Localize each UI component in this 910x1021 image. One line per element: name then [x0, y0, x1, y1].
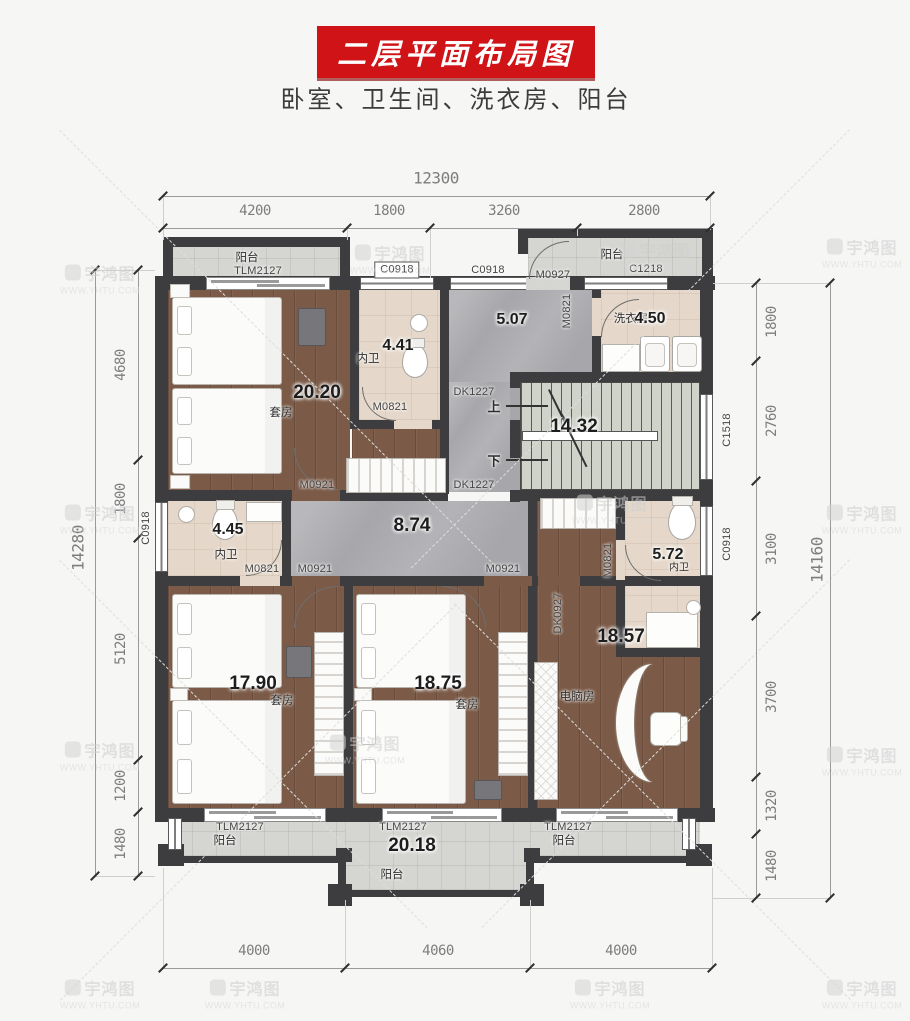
- door-code-m0821-bath-left: M0821: [245, 563, 280, 575]
- shower-tray: [646, 612, 698, 648]
- dim-left-2: 1800: [113, 483, 129, 515]
- extension-line: [95, 876, 155, 877]
- extension-line: [530, 900, 531, 968]
- opening-code-dk1227-lower: DK1227: [454, 479, 495, 491]
- wall: [510, 372, 600, 382]
- wall: [163, 237, 350, 247]
- extension-line: [163, 196, 164, 240]
- watermark-url: WWW.YHTU.COM: [822, 260, 902, 270]
- watermark-url: WWW.YHTU.COM: [822, 526, 902, 536]
- pillar: [328, 884, 352, 906]
- computer-area: 18.57: [597, 626, 645, 648]
- opening-code-dk0927: DK0927: [552, 593, 564, 634]
- door-code-m0821-bath-right: M0821: [602, 543, 614, 578]
- bath-top-label: 内卫: [357, 350, 380, 366]
- sink: [178, 506, 195, 523]
- window-code-c0918-right: C0918: [721, 527, 733, 560]
- watermark-url: WWW.YHTU.COM: [570, 1001, 650, 1011]
- balcony-door-tlm2127-bottom-center: [382, 808, 502, 822]
- hall-top-area: 5.07: [496, 311, 527, 329]
- yhtu-logo-icon: [209, 980, 225, 996]
- balcony-top-left-label: 阳台: [236, 249, 259, 265]
- bath-left-area: 4.45: [212, 521, 243, 539]
- watermark: 宇鸿图WWW.YHTU.COM: [822, 501, 902, 536]
- watermark: 宇鸿图WWW.YHTU.COM: [822, 743, 902, 778]
- dim-line-top-total: [163, 196, 710, 197]
- pillar: [520, 884, 544, 906]
- watermark: 宇鸿图WWW.YHTU.COM: [570, 976, 650, 1011]
- sink-counter: [246, 502, 282, 522]
- dim-line-left-total: [95, 270, 96, 876]
- watermark: 宇鸿图WWW.YHTU.COM: [822, 976, 902, 1011]
- dim-right-6: 1480: [764, 850, 780, 882]
- watermark-brand: 宇鸿图: [846, 976, 897, 1000]
- window-c0918-right: [700, 506, 713, 576]
- dim-bottom-1: 4000: [238, 943, 270, 959]
- door-opening-m0921-suite-top: [292, 490, 340, 501]
- door-opening-m0821-laundry: [592, 298, 601, 336]
- wardrobe: [498, 632, 528, 776]
- nightstand: [170, 475, 190, 489]
- dim-line-right-total: [830, 283, 831, 898]
- yhtu-logo-icon: [64, 505, 80, 521]
- door-opening-m0821-bath-left: [240, 576, 280, 586]
- yhtu-logo-icon: [826, 239, 842, 255]
- window-code-c0918-1: C0918: [374, 262, 419, 279]
- extension-line: [713, 898, 830, 899]
- watermark-brand: 宇鸿图: [846, 501, 897, 525]
- door-opening-m0821-bath-top: [394, 420, 432, 429]
- yhtu-logo-icon: [64, 742, 80, 758]
- dim-bottom-2: 4060: [422, 943, 454, 959]
- bed: [172, 297, 282, 385]
- opening-dk0927: [538, 576, 580, 586]
- watermark: 宇鸿图WWW.YHTU.COM: [60, 976, 140, 1011]
- watermark-url: WWW.YHTU.COM: [822, 1001, 902, 1011]
- window-c0918-top-1: [360, 277, 434, 290]
- window-c0918-top-2: [450, 277, 532, 290]
- wall: [282, 496, 291, 586]
- dim-left-4: 1200: [113, 770, 129, 802]
- suite-top-label: 套房: [270, 404, 293, 420]
- dim-left-total: 14280: [69, 525, 88, 571]
- bed: [356, 700, 466, 804]
- tv: [474, 780, 502, 800]
- dim-bottom-3: 4000: [605, 943, 637, 959]
- window-c1218: [584, 277, 668, 290]
- balcony-door-tlm2127-top: [206, 277, 330, 290]
- nightstand: [170, 284, 190, 298]
- dim-top-total: 12300: [413, 169, 459, 188]
- dim-left-3: 5120: [113, 633, 129, 665]
- balcony-bl-label: 阳台: [214, 832, 237, 848]
- dim-right-1: 1800: [764, 306, 780, 338]
- balcony-bc-label: 阳台: [381, 866, 404, 882]
- watermark-brand: 宇鸿图: [84, 738, 135, 762]
- washing-machine: [672, 336, 702, 372]
- wardrobe: [346, 458, 446, 493]
- tv: [286, 646, 312, 678]
- computer-label: 电脑房: [560, 688, 595, 704]
- watermark-brand: 宇鸿图: [594, 976, 645, 1000]
- dim-line-right-segments: [756, 283, 757, 898]
- balcony-br-label: 阳台: [553, 832, 576, 848]
- bath-right-label: 内卫: [669, 559, 689, 574]
- extension-line: [347, 228, 348, 240]
- watermark: 宇鸿图WWW.YHTU.COM: [822, 235, 902, 270]
- wardrobe: [314, 632, 344, 776]
- suite-bm-area: 18.75: [414, 673, 462, 695]
- door-code-m0821-bath-top: M0821: [373, 401, 408, 413]
- suite-bl-label: 套房: [271, 692, 294, 708]
- laundry-area: 4.50: [634, 310, 665, 328]
- door-code-m0821-laundry: M0821: [561, 294, 573, 329]
- wall: [344, 586, 353, 808]
- extension-line: [712, 868, 713, 968]
- suite-bm-label: 套房: [456, 696, 479, 712]
- wall: [592, 372, 712, 382]
- dim-right-2: 2760: [764, 405, 780, 437]
- wall: [518, 228, 712, 238]
- wall: [518, 228, 528, 254]
- pillar: [524, 848, 540, 862]
- wardrobe: [540, 498, 616, 529]
- bath-left-label: 内卫: [215, 546, 238, 562]
- balcony-corner-window: [168, 818, 182, 850]
- balcony-top-left-code: TLM2127: [234, 265, 282, 277]
- wall: [338, 890, 538, 897]
- bed: [172, 700, 282, 804]
- door-code-m0927: M0927: [536, 269, 571, 281]
- watermark-brand: 宇鸿图: [846, 743, 897, 767]
- extension-line: [430, 228, 431, 278]
- page-title: 二层平面布局图: [317, 26, 595, 78]
- balcony-bottom-area: 20.18: [388, 835, 436, 857]
- window-code-c1218: C1218: [629, 263, 662, 275]
- sink: [686, 600, 701, 615]
- dim-top-2: 1800: [373, 203, 405, 219]
- stairs-up-label: 上: [487, 397, 500, 416]
- dim-top-3: 3260: [488, 203, 520, 219]
- dim-left-1: 4680: [113, 349, 129, 381]
- floor-corridor-vertical: [449, 382, 510, 492]
- window-code-c0918-left: C0918: [140, 511, 152, 544]
- suite-top-area: 20.20: [293, 382, 341, 404]
- watermark-url: WWW.YHTU.COM: [60, 286, 140, 296]
- dim-right-total: 14160: [808, 537, 827, 583]
- window-code-c0918-2: C0918: [471, 264, 504, 276]
- tv: [298, 308, 326, 346]
- dim-top-1: 4200: [239, 203, 271, 219]
- dim-line-bottom: [163, 968, 712, 969]
- stairs-area: 14.32: [550, 416, 598, 438]
- window-c0918-left: [155, 502, 168, 572]
- door-code-m0921-suite-bl: M0921: [298, 563, 333, 575]
- bath-top-area: 4.41: [382, 337, 413, 355]
- corridor-area: 8.74: [394, 515, 431, 537]
- extension-line: [345, 900, 346, 968]
- watermark-url: WWW.YHTU.COM: [822, 768, 902, 778]
- watermark: 宇鸿图WWW.YHTU.COM: [205, 976, 285, 1011]
- door-opening-m0921-suite-bm: [484, 576, 532, 586]
- nightstand: [170, 688, 188, 701]
- wall: [532, 856, 712, 863]
- dim-left-5: 1480: [113, 828, 129, 860]
- watermark-brand: 宇鸿图: [229, 976, 280, 1000]
- dim-right-4: 3700: [764, 681, 780, 713]
- door-opening-m0821-bath-right: [616, 540, 625, 580]
- extension-line: [95, 270, 155, 271]
- stair-direction-line: [506, 459, 548, 461]
- floor-balcony-bottom-center: [345, 822, 530, 890]
- watermark-brand: 宇鸿图: [84, 976, 135, 1000]
- door-opening-m0921-suite-bl: [292, 576, 340, 586]
- yhtu-logo-icon: [826, 747, 842, 763]
- dim-line-left-segments: [138, 270, 139, 876]
- wall: [163, 856, 343, 863]
- opening-dk1227-upper: [510, 388, 520, 420]
- dim-line-top-segments: [163, 228, 710, 229]
- sink: [410, 314, 428, 332]
- door-code-m0921-suite-top: M0921: [300, 479, 335, 491]
- floorplan-page: 二层平面布局图 卧室、卫生间、洗衣房、阳台: [0, 0, 910, 1021]
- door-code-m0921-suite-bm: M0921: [486, 563, 521, 575]
- yhtu-logo-icon: [826, 980, 842, 996]
- yhtu-logo-icon: [64, 265, 80, 281]
- stairs-down-label: 下: [487, 451, 500, 470]
- dim-right-3: 3100: [764, 533, 780, 565]
- yhtu-logo-icon: [354, 245, 370, 261]
- yhtu-logo-icon: [826, 505, 842, 521]
- watermark-brand: 宇鸿图: [846, 235, 897, 259]
- stair-direction-line: [506, 405, 548, 407]
- watermark-url: WWW.YHTU.COM: [205, 1001, 285, 1011]
- dim-top-4: 2800: [628, 203, 660, 219]
- watermark-url: WWW.YHTU.COM: [60, 1001, 140, 1011]
- extension-line: [713, 283, 830, 284]
- extension-line: [163, 868, 164, 968]
- bed: [172, 388, 282, 474]
- watermark: 宇鸿图WWW.YHTU.COM: [60, 738, 140, 773]
- balcony-bc-code: TLM2127: [379, 821, 427, 833]
- yhtu-logo-icon: [574, 980, 590, 996]
- toilet: [668, 502, 696, 540]
- balcony-top-right-label: 阳台: [601, 246, 624, 262]
- wall: [616, 648, 712, 657]
- bookshelf: [534, 662, 558, 800]
- dim-right-5: 1320: [764, 790, 780, 822]
- page-subtitle: 卧室、卫生间、洗衣房、阳台: [281, 80, 632, 115]
- washing-machine: [640, 336, 670, 372]
- window-code-c1518: C1518: [721, 413, 733, 446]
- window-c1518-right: [700, 394, 713, 480]
